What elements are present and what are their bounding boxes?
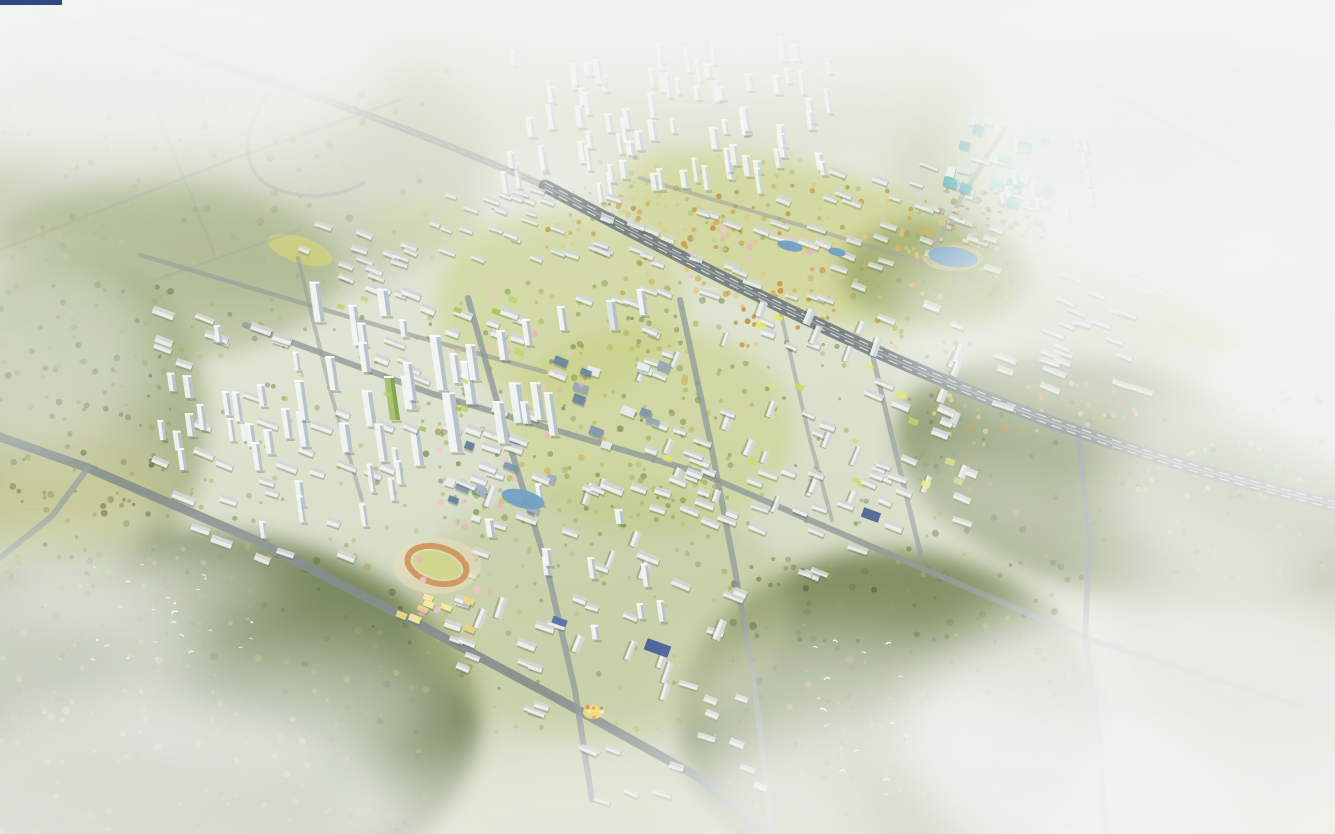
aerial-masterplan-render — [0, 0, 1335, 834]
scene-svg — [0, 0, 1335, 834]
scene-rect — [0, 0, 62, 5]
corner-bar-layer — [0, 0, 62, 5]
fog-layer — [0, 0, 1335, 834]
scene-rect — [0, 0, 1335, 150]
